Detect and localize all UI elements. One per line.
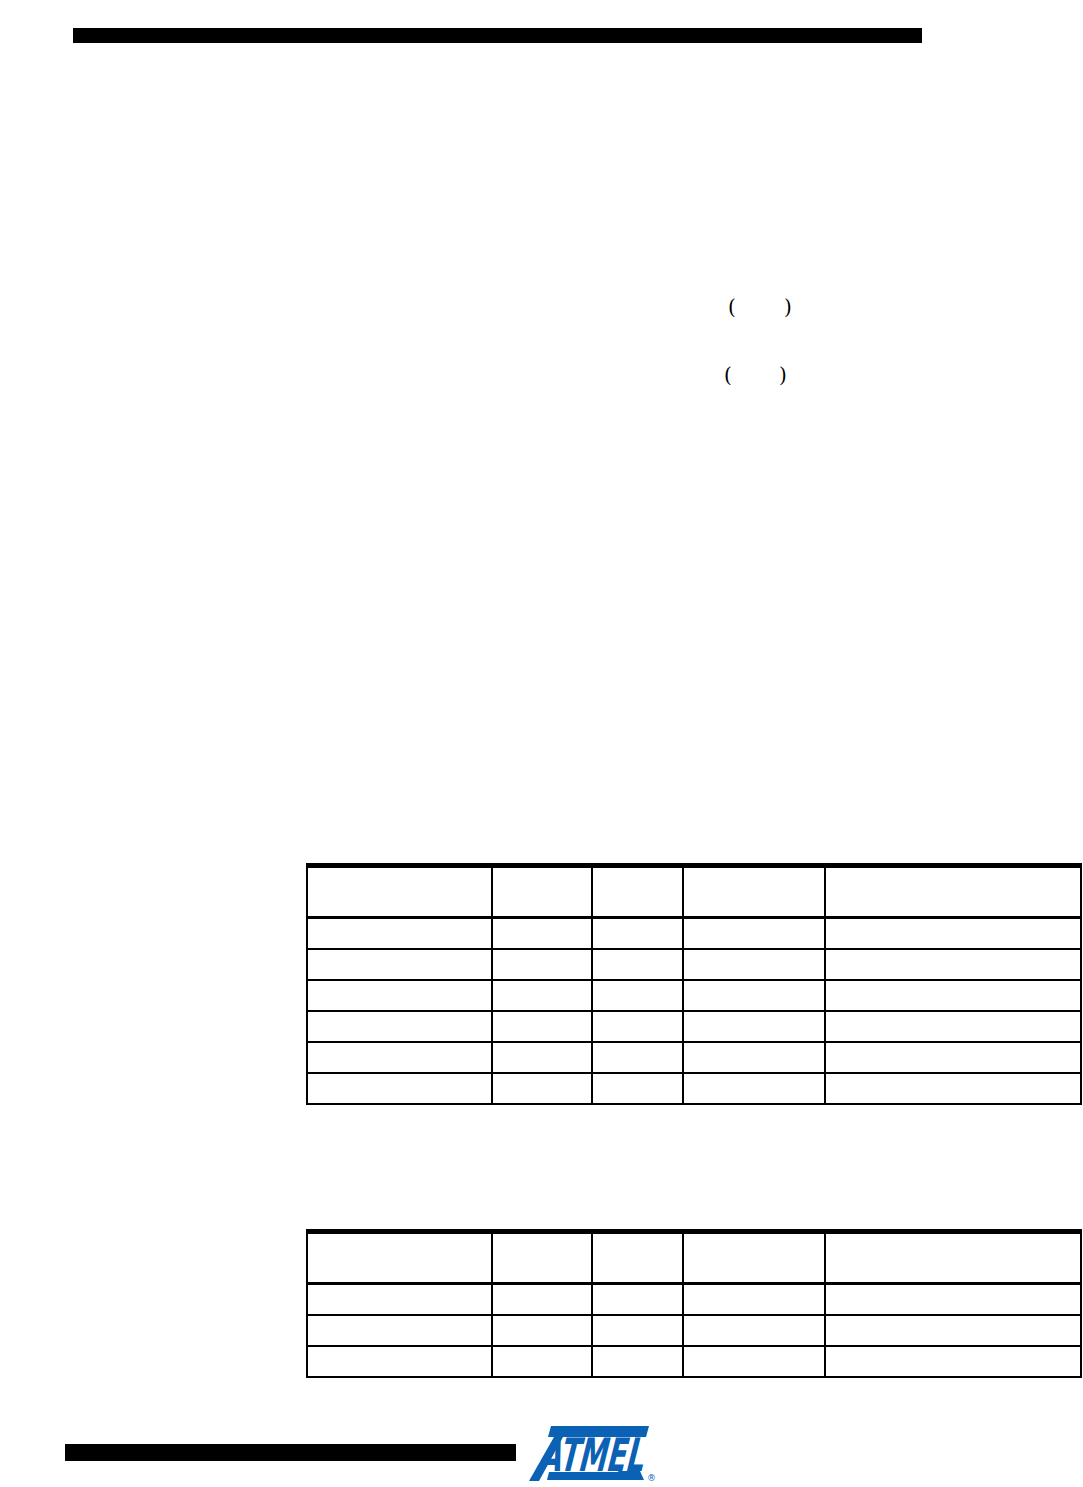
- table_1-cell: [825, 949, 1081, 980]
- table_2-cell: [307, 1346, 492, 1377]
- table-2: [306, 1229, 1082, 1378]
- paren-pair-2-open: (: [724, 364, 732, 386]
- table_1-cell: [592, 1073, 683, 1104]
- table_1-header-cell: [683, 866, 825, 918]
- table_1-cell: [492, 1042, 592, 1073]
- table_1-header-cell: [307, 866, 492, 918]
- table_2-cell: [592, 1315, 683, 1346]
- table_1-cell: [592, 980, 683, 1011]
- table_1-row: [307, 1042, 1081, 1073]
- table_1-cell: [825, 1042, 1081, 1073]
- document-page: ( ) ( ) ATMEL ®: [0, 0, 1083, 1487]
- atmel-logo-svg: ATMEL ®: [528, 1424, 656, 1481]
- registered-trademark-icon: ®: [647, 1473, 656, 1481]
- paren-pair-1-open: (: [728, 296, 736, 318]
- table_1-cell: [592, 918, 683, 949]
- table_2-cell: [825, 1284, 1081, 1315]
- table_1-cell: [592, 1042, 683, 1073]
- table_2-cell: [683, 1284, 825, 1315]
- top-rule: [73, 28, 922, 43]
- table_1-cell: [592, 1011, 683, 1042]
- table_1-cell: [683, 980, 825, 1011]
- table_1-cell: [825, 1011, 1081, 1042]
- table-1: [306, 863, 1082, 1105]
- table_2-row: [307, 1284, 1081, 1315]
- table_2-cell: [592, 1284, 683, 1315]
- table_1-cell: [683, 918, 825, 949]
- table_1-cell: [683, 1073, 825, 1104]
- table_1-cell: [307, 1042, 492, 1073]
- table_1-header-row: [307, 866, 1081, 918]
- table_2-cell: [307, 1284, 492, 1315]
- table_1-row: [307, 980, 1081, 1011]
- table_1-cell: [492, 980, 592, 1011]
- table_2-cell: [683, 1346, 825, 1377]
- table_1-cell: [683, 1042, 825, 1073]
- table_1-cell: [492, 1011, 592, 1042]
- table_1-row: [307, 949, 1081, 980]
- table_1-cell: [307, 1073, 492, 1104]
- table_1-cell: [825, 918, 1081, 949]
- table_2-cell: [307, 1315, 492, 1346]
- table_2-header-cell: [825, 1232, 1081, 1284]
- bottom-rule: [65, 1444, 516, 1461]
- table_1-row: [307, 1011, 1081, 1042]
- table_1-row: [307, 1073, 1081, 1104]
- table_2-cell: [492, 1315, 592, 1346]
- table_1-cell: [825, 1073, 1081, 1104]
- table_2-row: [307, 1315, 1081, 1346]
- table_2-header-cell: [307, 1232, 492, 1284]
- table_1-header-cell: [825, 866, 1081, 918]
- table_1-cell: [683, 1011, 825, 1042]
- table_2-cell: [492, 1284, 592, 1315]
- table_2-header-cell: [592, 1232, 683, 1284]
- table_1-cell: [307, 949, 492, 980]
- atmel-logo: ATMEL ®: [528, 1424, 656, 1481]
- table_2-cell: [825, 1346, 1081, 1377]
- paren-pair-2-close: ): [779, 364, 787, 386]
- table_2-header-cell: [492, 1232, 592, 1284]
- table_1-cell: [307, 918, 492, 949]
- table_1-row: [307, 918, 1081, 949]
- table_1-cell: [492, 1073, 592, 1104]
- table_2-header-cell: [683, 1232, 825, 1284]
- table_1-cell: [825, 980, 1081, 1011]
- table_1-cell: [683, 949, 825, 980]
- table_1-cell: [307, 1011, 492, 1042]
- table_2-cell: [683, 1315, 825, 1346]
- table_2-cell: [492, 1346, 592, 1377]
- table_2-header-row: [307, 1232, 1081, 1284]
- table_1-cell: [307, 980, 492, 1011]
- atmel-logo-text: ATMEL: [536, 1429, 653, 1481]
- paren-pair-1-close: ): [784, 296, 792, 318]
- table_2-cell: [592, 1346, 683, 1377]
- table_1-cell: [492, 918, 592, 949]
- table_2-row: [307, 1346, 1081, 1377]
- table_1-header-cell: [592, 866, 683, 918]
- table_1-header-cell: [492, 866, 592, 918]
- table_2-cell: [825, 1315, 1081, 1346]
- table_1-cell: [592, 949, 683, 980]
- table_1-cell: [492, 949, 592, 980]
